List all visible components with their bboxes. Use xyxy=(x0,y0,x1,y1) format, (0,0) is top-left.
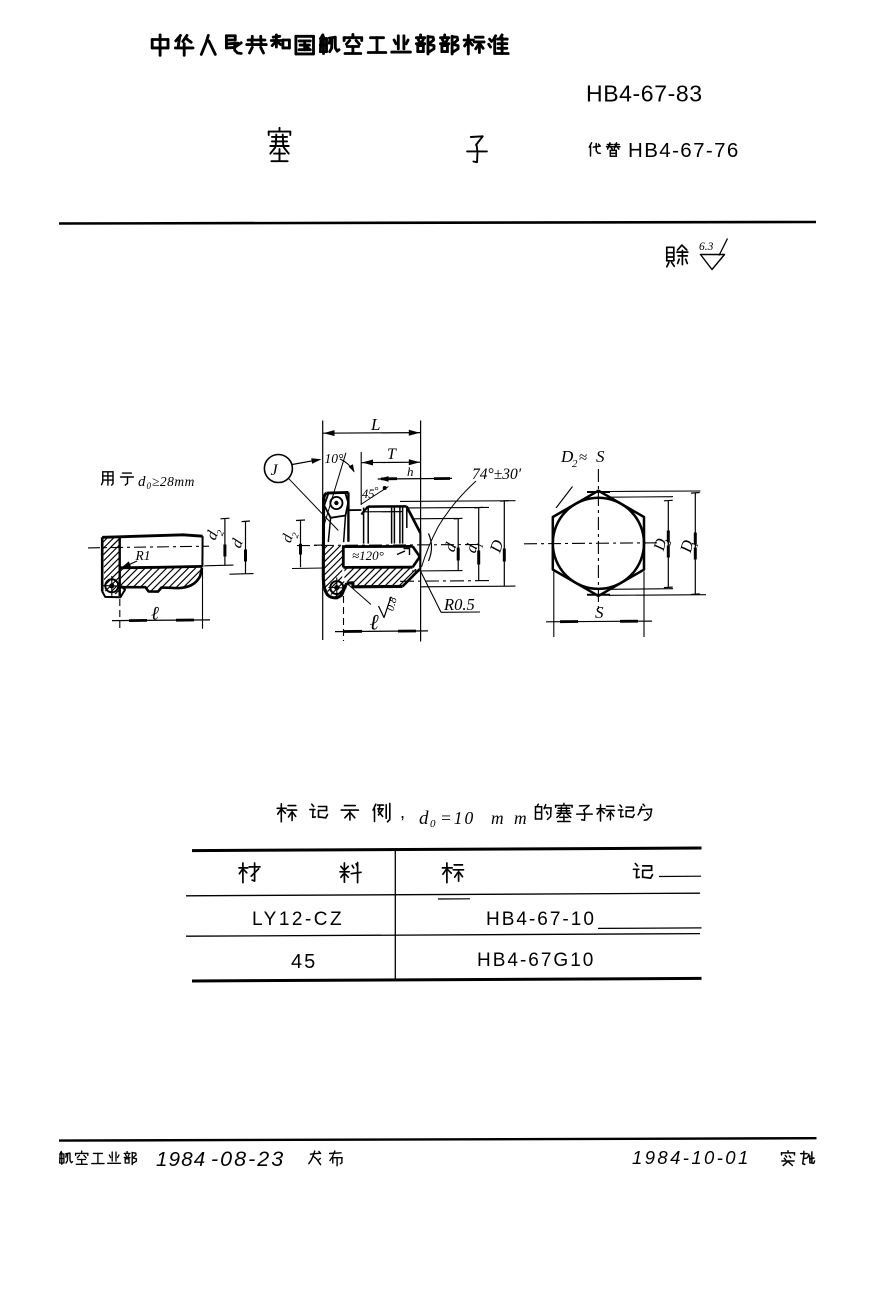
svg-text:R0.5: R0.5 xyxy=(443,595,475,614)
svg-text:T: T xyxy=(387,446,397,463)
svg-text:S: S xyxy=(596,447,605,466)
svg-text:=10: =10 xyxy=(440,808,475,828)
svg-text:≈: ≈ xyxy=(579,450,587,466)
svg-text:ℓ: ℓ xyxy=(151,604,159,625)
svg-text:10°: 10° xyxy=(325,451,345,466)
svg-text:≥28mm: ≥28mm xyxy=(152,474,195,489)
svg-text:ℓ: ℓ xyxy=(370,610,380,635)
svg-text:L: L xyxy=(370,415,380,434)
svg-text:m m: m m xyxy=(491,808,530,828)
svg-text:h: h xyxy=(407,464,414,479)
svg-text:R1: R1 xyxy=(135,548,151,563)
svg-text:0: 0 xyxy=(147,481,152,491)
svg-text:1984: 1984 xyxy=(156,1148,206,1171)
svg-text:6.3: 6.3 xyxy=(699,241,714,253)
svg-text:LY12-CZ: LY12-CZ xyxy=(252,909,344,930)
svg-text:HB4-67-83: HB4-67-83 xyxy=(586,81,703,107)
svg-text:74°±30′: 74°±30′ xyxy=(472,466,522,483)
svg-text:≈120°: ≈120° xyxy=(352,548,384,563)
svg-text:,: , xyxy=(400,802,405,822)
svg-text:1984-10-01: 1984-10-01 xyxy=(632,1147,751,1168)
svg-text:HB4-67-10: HB4-67-10 xyxy=(486,909,596,930)
svg-text:d: d xyxy=(228,536,247,551)
svg-text:S: S xyxy=(595,603,604,622)
svg-text:0.8: 0.8 xyxy=(385,595,400,612)
svg-text:0: 0 xyxy=(430,818,436,830)
svg-text:45: 45 xyxy=(291,951,317,973)
svg-text:d: d xyxy=(138,474,146,490)
svg-text:45: 45 xyxy=(362,487,375,501)
svg-text:HB4-67G10: HB4-67G10 xyxy=(477,950,595,971)
svg-text:2: 2 xyxy=(572,458,578,470)
svg-text:HB4-67-76: HB4-67-76 xyxy=(628,139,740,162)
svg-text:J: J xyxy=(270,462,278,479)
svg-text:-08-23: -08-23 xyxy=(211,1147,285,1171)
svg-text:d: d xyxy=(419,808,429,829)
